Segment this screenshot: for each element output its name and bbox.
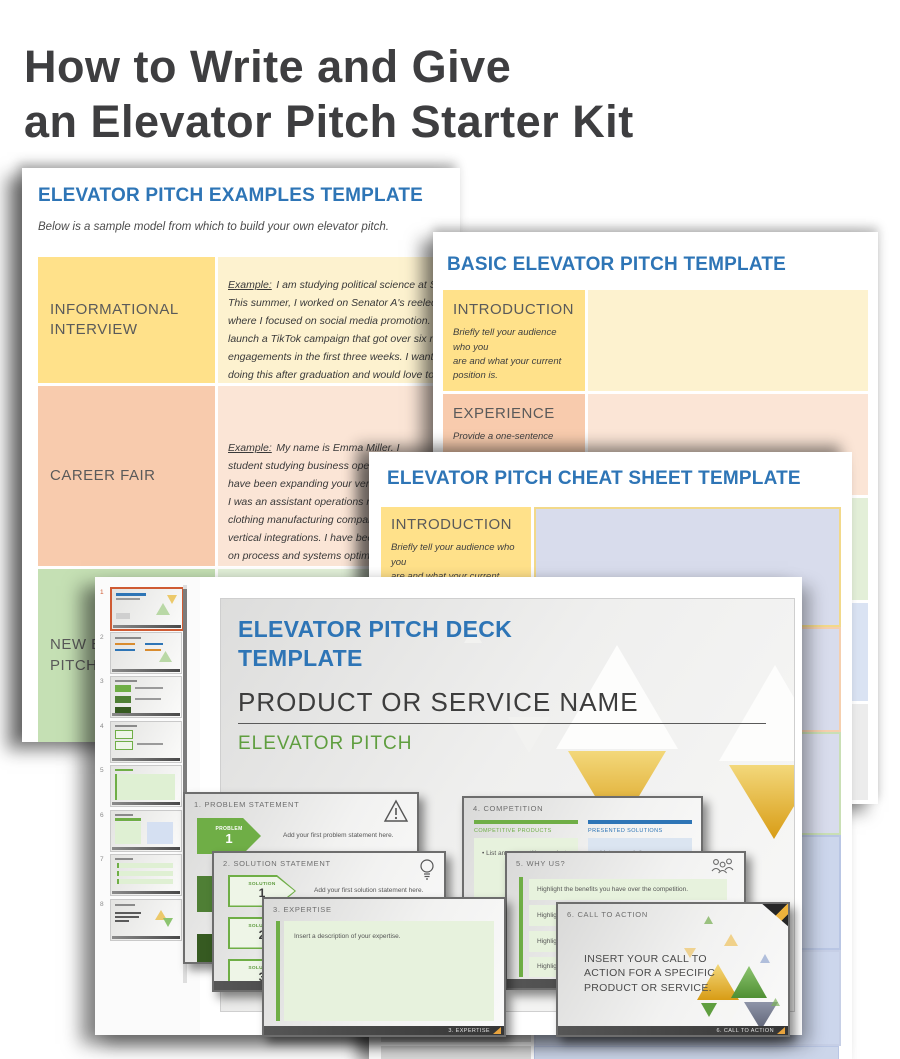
example-label: Example: (228, 279, 272, 291)
slide-thumbnail-8[interactable] (110, 899, 182, 941)
warning-triangle-icon (383, 799, 409, 828)
thumb-number: 7 (100, 856, 108, 863)
slide-thumbnail-7[interactable] (110, 854, 182, 896)
cheat-sheet-template-title: ELEVATOR PITCH CHEAT SHEET TEMPLATE (387, 468, 801, 490)
triangle-decoration (704, 916, 713, 924)
thumb-number: 3 (100, 678, 108, 685)
expertise-body-text: Insert a description of your expertise. (294, 933, 474, 940)
examples-template-subtitle: Below is a sample model from which to bu… (38, 221, 389, 233)
slide-thumbnail-3[interactable] (110, 676, 182, 718)
card-footer: 6. CALL TO ACTION (558, 1026, 788, 1035)
cta-body-text: INSERT YOUR CALL TO ACTION FOR A SPECIFI… (584, 952, 740, 995)
problem-badge-1: PROBLEM 1 (197, 818, 261, 854)
triangle-decoration (760, 954, 770, 963)
card-footer-label: 6. CALL TO ACTION (717, 1028, 774, 1034)
thumb-number: 1 (100, 589, 108, 596)
competitive-products-label: COMPETITIVE PRODUCTS (474, 828, 552, 834)
thumb-number: 8 (100, 901, 108, 908)
slide-card-call-to-action: 6. CALL TO ACTION INSERT YOUR CALL TO AC… (556, 902, 790, 1037)
deck-slide-title: ELEVATOR PITCH DECK TEMPLATE (238, 615, 512, 674)
triangle-decoration (719, 665, 795, 761)
why-us-row-1: Highlight the benefits you have over the… (529, 879, 727, 900)
corner-accent (760, 902, 790, 928)
triangle-decoration (701, 1003, 717, 1017)
slide-thumbnail-2[interactable] (110, 632, 182, 674)
card-footer: 3. EXPERTISE (264, 1026, 504, 1035)
slide-thumbnail-5[interactable] (110, 765, 182, 807)
slide-divider-line (238, 723, 766, 724)
cheat-row-label-6 (381, 1046, 531, 1059)
page-title-line2: an Elevator Pitch Starter Kit (24, 95, 634, 150)
footer-wedge (493, 1027, 501, 1034)
thumb-number: 2 (100, 634, 108, 641)
thumb-number: 5 (100, 767, 108, 774)
slide-thumbnail-4[interactable] (110, 721, 182, 763)
page-title-line1: How to Write and Give (24, 40, 634, 95)
slide-thumbnail-6[interactable] (110, 810, 182, 852)
basic-introduction-desc: Briefly tell your audience who you are a… (453, 326, 575, 383)
footer-wedge (777, 1027, 785, 1034)
green-accent-bar (519, 877, 523, 977)
basic-row-label-introduction: INTRODUCTION Briefly tell your audience … (443, 290, 585, 391)
slide-card-expertise: 3. EXPERTISE Insert a description of you… (262, 897, 506, 1037)
thumb-number: 6 (100, 812, 108, 819)
triangle-decoration (729, 765, 795, 839)
problem-body-text: Add your first problem statement here. (283, 832, 403, 839)
slide-thumbnail-1[interactable] (110, 587, 184, 631)
blue-column-bar (588, 820, 692, 824)
lightbulb-icon (418, 858, 436, 887)
cheat-row-content-6 (534, 1046, 839, 1059)
examples-template-title: ELEVATOR PITCH EXAMPLES TEMPLATE (38, 185, 423, 207)
triangle-decoration (714, 1002, 742, 1026)
card-footer-label: 3. EXPERTISE (448, 1028, 490, 1034)
page: { "page": { "title_line1": "How to Write… (0, 0, 900, 1059)
elevator-pitch-label: ELEVATOR PITCH (238, 733, 412, 755)
people-icon (710, 858, 736, 879)
triangle-decoration (724, 934, 738, 946)
page-title: How to Write and Give an Elevator Pitch … (24, 40, 634, 150)
basic-experience-desc: Provide a one-sentence (453, 430, 575, 444)
examples-row-label-career-fair: CAREER FAIR (38, 386, 215, 566)
examples-row-label-informational-interview: INFORMATIONAL INTERVIEW (38, 257, 215, 383)
basic-template-title: BASIC ELEVATOR PITCH TEMPLATE (447, 254, 786, 276)
product-or-service-name: PRODUCT OR SERVICE NAME (238, 687, 639, 718)
solution-body-text: Add your first solution statement here. (314, 887, 434, 894)
example-label: Example: (228, 442, 272, 454)
examples-row-content-informational-interview: Example: I am studying political science… (218, 257, 460, 383)
thumb-number: 4 (100, 723, 108, 730)
green-column-bar (474, 820, 578, 824)
presented-solutions-label: PRESENTED SOLUTIONS (588, 828, 663, 834)
green-accent-bar (276, 921, 280, 1021)
basic-row-content-introduction (588, 290, 868, 391)
